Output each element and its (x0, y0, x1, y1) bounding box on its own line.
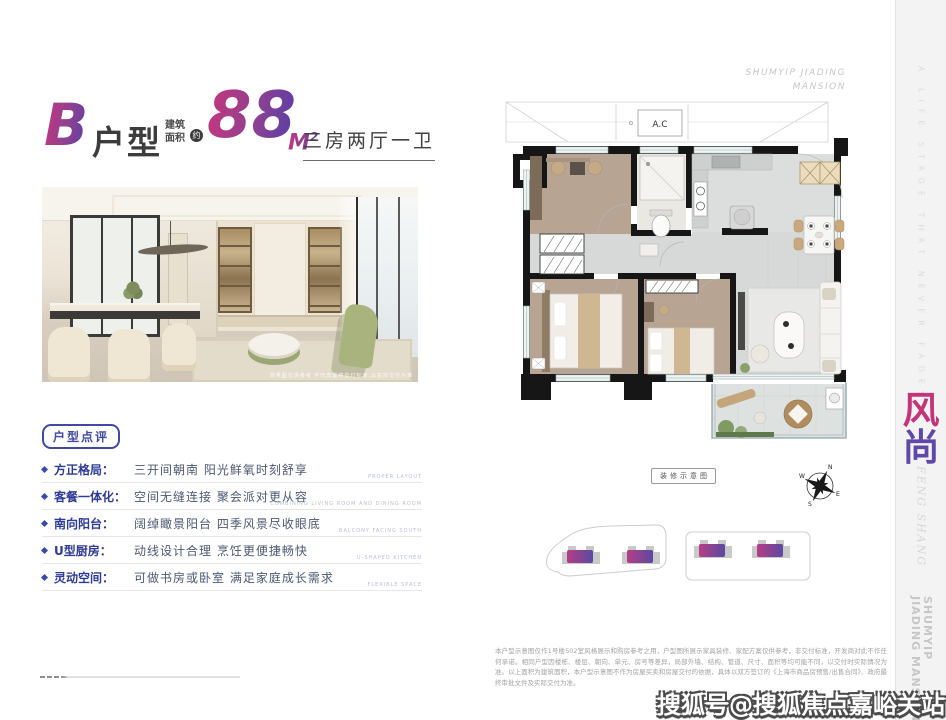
svg-text:W: W (799, 473, 805, 480)
review-badge: 户型点评 (42, 424, 120, 449)
brand-char-feng: 风 (896, 392, 946, 429)
brand-chinese: 风 尚 (896, 392, 946, 466)
flyer-page: A LIFE STAGE THAT NEVER FADES 风 尚 FENG S… (0, 0, 946, 720)
watermark: 搜狐号@搜狐焦点嘉峪关站 (657, 685, 945, 720)
marble-shelf (218, 227, 252, 313)
master-bedroom (532, 282, 622, 372)
bullet-icon (41, 466, 48, 473)
svg-text:E: E (836, 491, 840, 498)
side-strip: A LIFE STAGE THAT NEVER FADES 风 尚 FENG S… (895, 0, 946, 720)
review-row: U型厨房： 动线设计合理 烹饪更便捷畅快 U-SHAPED KITCHEN (42, 537, 422, 564)
interior-photo: 效果图仅供参考 不代表最终交付标准 以实际交付为准 (42, 187, 418, 382)
table-plant (120, 279, 146, 305)
bullet-icon (41, 493, 48, 500)
living-furniture (738, 282, 841, 374)
footer-rule (40, 676, 240, 678)
review-row: 客餐一体化： 空间无缝连接 聚会派对更从容 COMBINING LIVING R… (42, 483, 422, 510)
ac-label: A.C (652, 120, 667, 130)
side-tagline: A LIFE STAGE THAT NEVER FADES (917, 66, 926, 403)
marble-shelf (308, 227, 342, 313)
foyer-cabinets (800, 162, 840, 184)
plan-brand-text: SHUMYIP JIADING MANSION (720, 67, 846, 94)
brand-english-vertical: FENG SHANG (915, 466, 928, 546)
disclaimer-text: 本户型示意图仅作1号楼502室风格展示和购房参考之用，户型图所展示家具装修、家配… (495, 646, 887, 689)
unit-suffix: 户型 (92, 116, 162, 164)
review-row: 南向阳台： 阔绰瞰景阳台 四季风景尽收眼底 BALCONY FACING SOU… (42, 510, 422, 537)
brand-char-shang: 尚 (896, 429, 946, 466)
coffee-table (248, 333, 300, 359)
area-approx-badge: 约 (190, 129, 203, 142)
bullet-icon (41, 574, 48, 581)
unit-letter: B (44, 96, 88, 154)
review-row: 方正格局： 三开间朝南 阳光鲜氧时刻舒享 PROPER LAYOUT (42, 456, 422, 483)
site-diagrams (538, 520, 818, 600)
compass-icon: N E S W (798, 460, 842, 510)
svg-text:N: N (828, 464, 833, 471)
review-section: 户型点评 方正格局： 三开间朝南 阳光鲜氧时刻舒享 PROPER LAYOUT … (42, 424, 422, 591)
layout-text: 三房两厅一卫 (303, 126, 435, 161)
bullet-icon (41, 547, 48, 554)
svg-text:S: S (808, 501, 812, 508)
review-row: 灵动空间： 可做书房或卧室 满足家庭成长需求 FLEXIBLE SPACE (42, 564, 422, 591)
area-label: 建筑 面积 (165, 119, 185, 145)
area-value: 88 (207, 84, 296, 148)
photo-caption: 效果图仅供参考 不代表最终交付标准 以实际交付为准 (270, 372, 413, 379)
bullet-icon (41, 520, 48, 527)
floor-plan: A.C (498, 96, 868, 448)
schematic-label: 装修示意图 (651, 468, 716, 484)
dining-table (50, 305, 200, 319)
